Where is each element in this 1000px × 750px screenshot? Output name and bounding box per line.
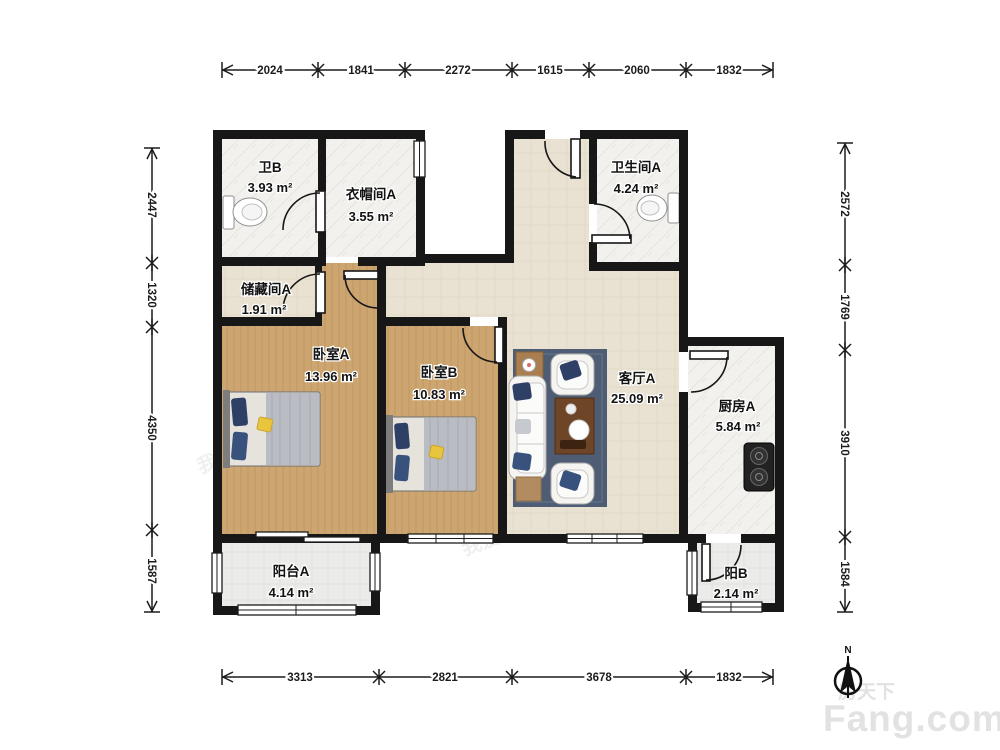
bed-b (386, 415, 476, 493)
dim-right-3: 1584 (838, 561, 850, 587)
dim-right-0: 2572 (838, 191, 850, 217)
dim-left-2: 4350 (145, 415, 157, 441)
dimension-chain-left: 2447 1320 4350 1587 (144, 148, 160, 612)
coffee-table (555, 398, 594, 454)
dim-top-1: 1841 (348, 65, 374, 77)
window-bedroom-b (408, 534, 493, 543)
window-notch (414, 141, 425, 177)
armchair-top (551, 354, 594, 395)
floor-bath-b (222, 139, 318, 257)
room-area: 3.55 m² (349, 209, 394, 224)
dim-bottom-1: 2821 (432, 672, 458, 684)
window-balcony-a-left (212, 553, 222, 593)
dim-right-1: 1769 (838, 294, 850, 320)
dim-bottom-0: 3313 (287, 672, 313, 684)
dimension-chain-bottom: 3313 2821 3678 1832 (222, 669, 773, 685)
room-name: 卧室B (421, 364, 458, 380)
dimension-chain-top: 2024 1841 2272 1615 2060 1832 (222, 62, 773, 78)
dimension-chain-right: 2572 1769 3910 1584 (837, 143, 853, 612)
side-table (516, 352, 543, 378)
room-area: 10.83 m² (413, 387, 466, 402)
room-area: 4.14 m² (269, 585, 314, 600)
room-name: 阳B (724, 566, 748, 581)
room-area: 3.93 m² (248, 180, 293, 195)
window-living (567, 534, 643, 543)
sofa (509, 376, 546, 480)
dim-top-2: 2272 (445, 65, 471, 77)
room-name: 厨房A (719, 398, 756, 414)
compass-north-label: N (844, 645, 851, 656)
floor-kitchen (688, 346, 775, 534)
dim-bottom-2: 3678 (586, 672, 612, 684)
dim-top-3: 1615 (537, 65, 563, 77)
armchair-bottom (551, 463, 594, 504)
room-name: 卫生间A (611, 159, 661, 175)
room-area: 13.96 m² (305, 369, 358, 384)
low-table (516, 477, 541, 501)
window-balcony-b-bottom (701, 602, 762, 612)
room-area: 4.24 m² (614, 181, 659, 196)
bed-a (223, 390, 320, 468)
window-balcony-a-right (370, 553, 380, 591)
room-area: 25.09 m² (611, 391, 664, 406)
dim-left-3: 1587 (145, 558, 157, 584)
room-area: 2.14 m² (714, 586, 759, 601)
compass: N (835, 645, 861, 698)
room-name: 卧室A (313, 346, 350, 362)
window-balcony-a-bottom (238, 605, 356, 615)
dim-left-1: 1320 (145, 282, 157, 308)
dim-right-2: 3910 (838, 430, 850, 456)
dim-top-4: 2060 (624, 65, 650, 77)
room-name: 储藏间A (240, 281, 291, 297)
toilet-bath-a (637, 193, 679, 223)
dim-top-5: 1832 (716, 65, 742, 77)
room-area: 1.91 m² (242, 302, 287, 317)
dim-bottom-3: 1832 (716, 672, 742, 684)
fang-logo: 房天下 Fang.com (823, 680, 1000, 739)
room-name: 卫B (258, 160, 281, 175)
floor-hallway (386, 263, 505, 317)
stove (744, 443, 774, 491)
dim-top-0: 2024 (257, 65, 283, 77)
dim-left-0: 2447 (145, 192, 157, 218)
room-name: 客厅A (618, 370, 656, 386)
floorplan-image: 我爱我家 我爱我家 我爱我家 (0, 0, 1000, 750)
fang-logo-en: Fang.com (823, 698, 1000, 739)
living-room-set (509, 349, 607, 507)
room-area: 5.84 m² (716, 419, 761, 434)
floorplan-svg: 我爱我家 我爱我家 我爱我家 (0, 0, 1000, 750)
room-name: 阳台A (273, 563, 310, 579)
window-balcony-b-left (687, 551, 697, 595)
room-name: 衣帽间A (346, 186, 396, 202)
